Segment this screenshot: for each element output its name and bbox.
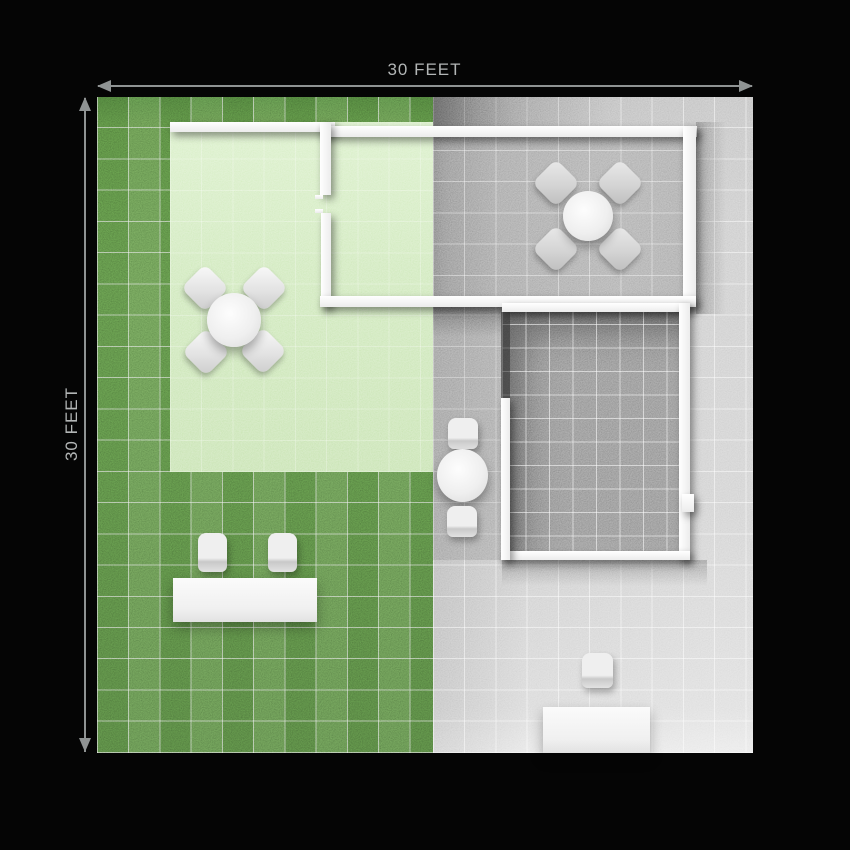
left-dimension-arrow-up — [79, 97, 91, 111]
bench-chair-right — [268, 533, 297, 572]
door-jamb-top — [315, 195, 323, 199]
site-plan-canvas: 30 FEET 30 FEET — [0, 0, 850, 850]
bench-table — [173, 578, 317, 622]
wall-inner-room-right — [679, 303, 690, 560]
entry-table — [543, 707, 650, 753]
grass-dining-table — [207, 293, 261, 347]
wall-interior-vertical-lower — [321, 213, 331, 307]
top-dimension-arrow-right — [739, 80, 753, 92]
wall-top-left — [170, 122, 335, 132]
bench-chair-left — [198, 533, 227, 572]
bistro-chair-bottom — [447, 506, 477, 537]
top-dimension-line — [98, 85, 752, 87]
grain-texture-overlay — [97, 97, 753, 753]
inner-room-doorway-opening — [501, 312, 510, 398]
bistro-table — [437, 449, 488, 502]
wall-top-right — [320, 126, 697, 137]
top-dimension-label: 30 FEET — [97, 60, 752, 80]
wall-inner-room-top — [502, 303, 690, 312]
wall-inner-room-left — [501, 398, 510, 560]
entry-chair — [582, 653, 613, 688]
floor-plan — [97, 97, 753, 753]
left-dimension-arrow-down — [79, 738, 91, 752]
wall-inner-room-bottom — [502, 551, 690, 560]
left-dimension-line — [84, 98, 86, 752]
left-dimension-label: 30 FEET — [62, 96, 82, 752]
inner-room-door-leaf — [682, 494, 694, 512]
wall-interior-vertical-upper — [320, 122, 331, 195]
bistro-chair-top — [448, 418, 478, 449]
top-dimension-arrow-left — [97, 80, 111, 92]
room-dining-table — [563, 191, 613, 241]
wall-dining-room-right — [683, 126, 696, 307]
